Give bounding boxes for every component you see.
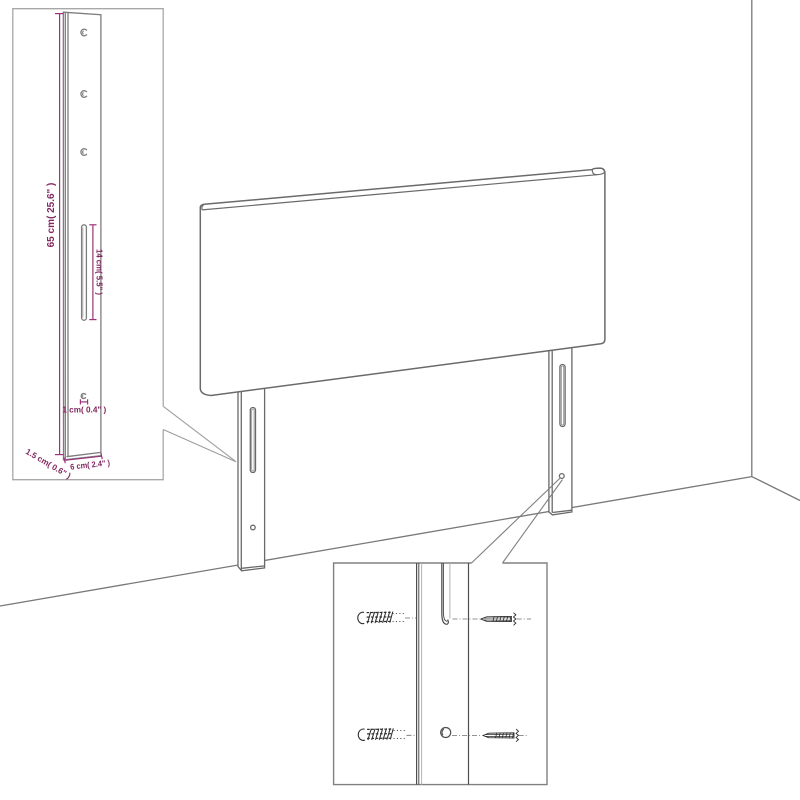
svg-text:6 cm( 2.4" ): 6 cm( 2.4" ) bbox=[70, 458, 111, 471]
svg-text:1 cm( 0.4" ): 1 cm( 0.4" ) bbox=[62, 406, 106, 415]
svg-text:65 cm( 25.6" ): 65 cm( 25.6" ) bbox=[46, 183, 57, 248]
svg-text:14 cm( 5.5" ): 14 cm( 5.5" ) bbox=[95, 249, 104, 295]
